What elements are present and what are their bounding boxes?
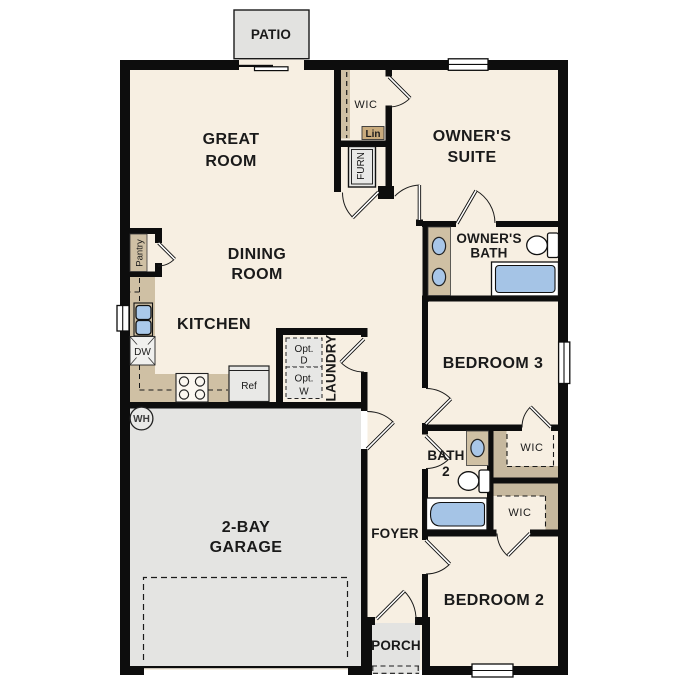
svg-text:DW: DW xyxy=(134,347,151,358)
svg-text:Lin: Lin xyxy=(366,129,381,140)
svg-text:OWNER'S: OWNER'S xyxy=(456,231,521,246)
svg-text:BEDROOM 2: BEDROOM 2 xyxy=(444,592,545,609)
svg-text:FURN: FURN xyxy=(356,152,367,180)
svg-text:KITCHEN: KITCHEN xyxy=(177,316,251,333)
svg-text:WIC: WIC xyxy=(520,442,543,454)
svg-text:Opt.: Opt. xyxy=(295,374,314,385)
svg-text:2-BAY: 2-BAY xyxy=(222,519,271,536)
svg-text:ROOM: ROOM xyxy=(231,266,282,283)
svg-text:LAUNDRY: LAUNDRY xyxy=(324,335,339,402)
svg-text:PORCH: PORCH xyxy=(371,638,421,653)
svg-text:W: W xyxy=(299,387,309,398)
svg-text:GARAGE: GARAGE xyxy=(210,539,283,556)
svg-text:BEDROOM 3: BEDROOM 3 xyxy=(443,355,544,372)
svg-text:Pantry: Pantry xyxy=(135,239,146,267)
svg-text:OWNER'S: OWNER'S xyxy=(433,128,512,145)
svg-text:2: 2 xyxy=(442,464,450,479)
svg-text:WIC: WIC xyxy=(354,99,377,111)
svg-text:BATH: BATH xyxy=(470,246,507,261)
svg-text:ROOM: ROOM xyxy=(205,153,256,170)
svg-text:WIC: WIC xyxy=(508,507,531,519)
svg-text:DINING: DINING xyxy=(228,246,286,263)
svg-text:PATIO: PATIO xyxy=(251,27,291,42)
svg-text:FOYER: FOYER xyxy=(371,526,419,541)
svg-text:D: D xyxy=(300,356,307,367)
svg-text:SUITE: SUITE xyxy=(447,149,496,166)
svg-text:Opt.: Opt. xyxy=(295,344,314,355)
svg-text:WH: WH xyxy=(133,414,150,425)
svg-text:GREAT: GREAT xyxy=(203,131,260,148)
svg-text:Ref: Ref xyxy=(241,381,257,392)
svg-text:BATH: BATH xyxy=(427,448,464,463)
